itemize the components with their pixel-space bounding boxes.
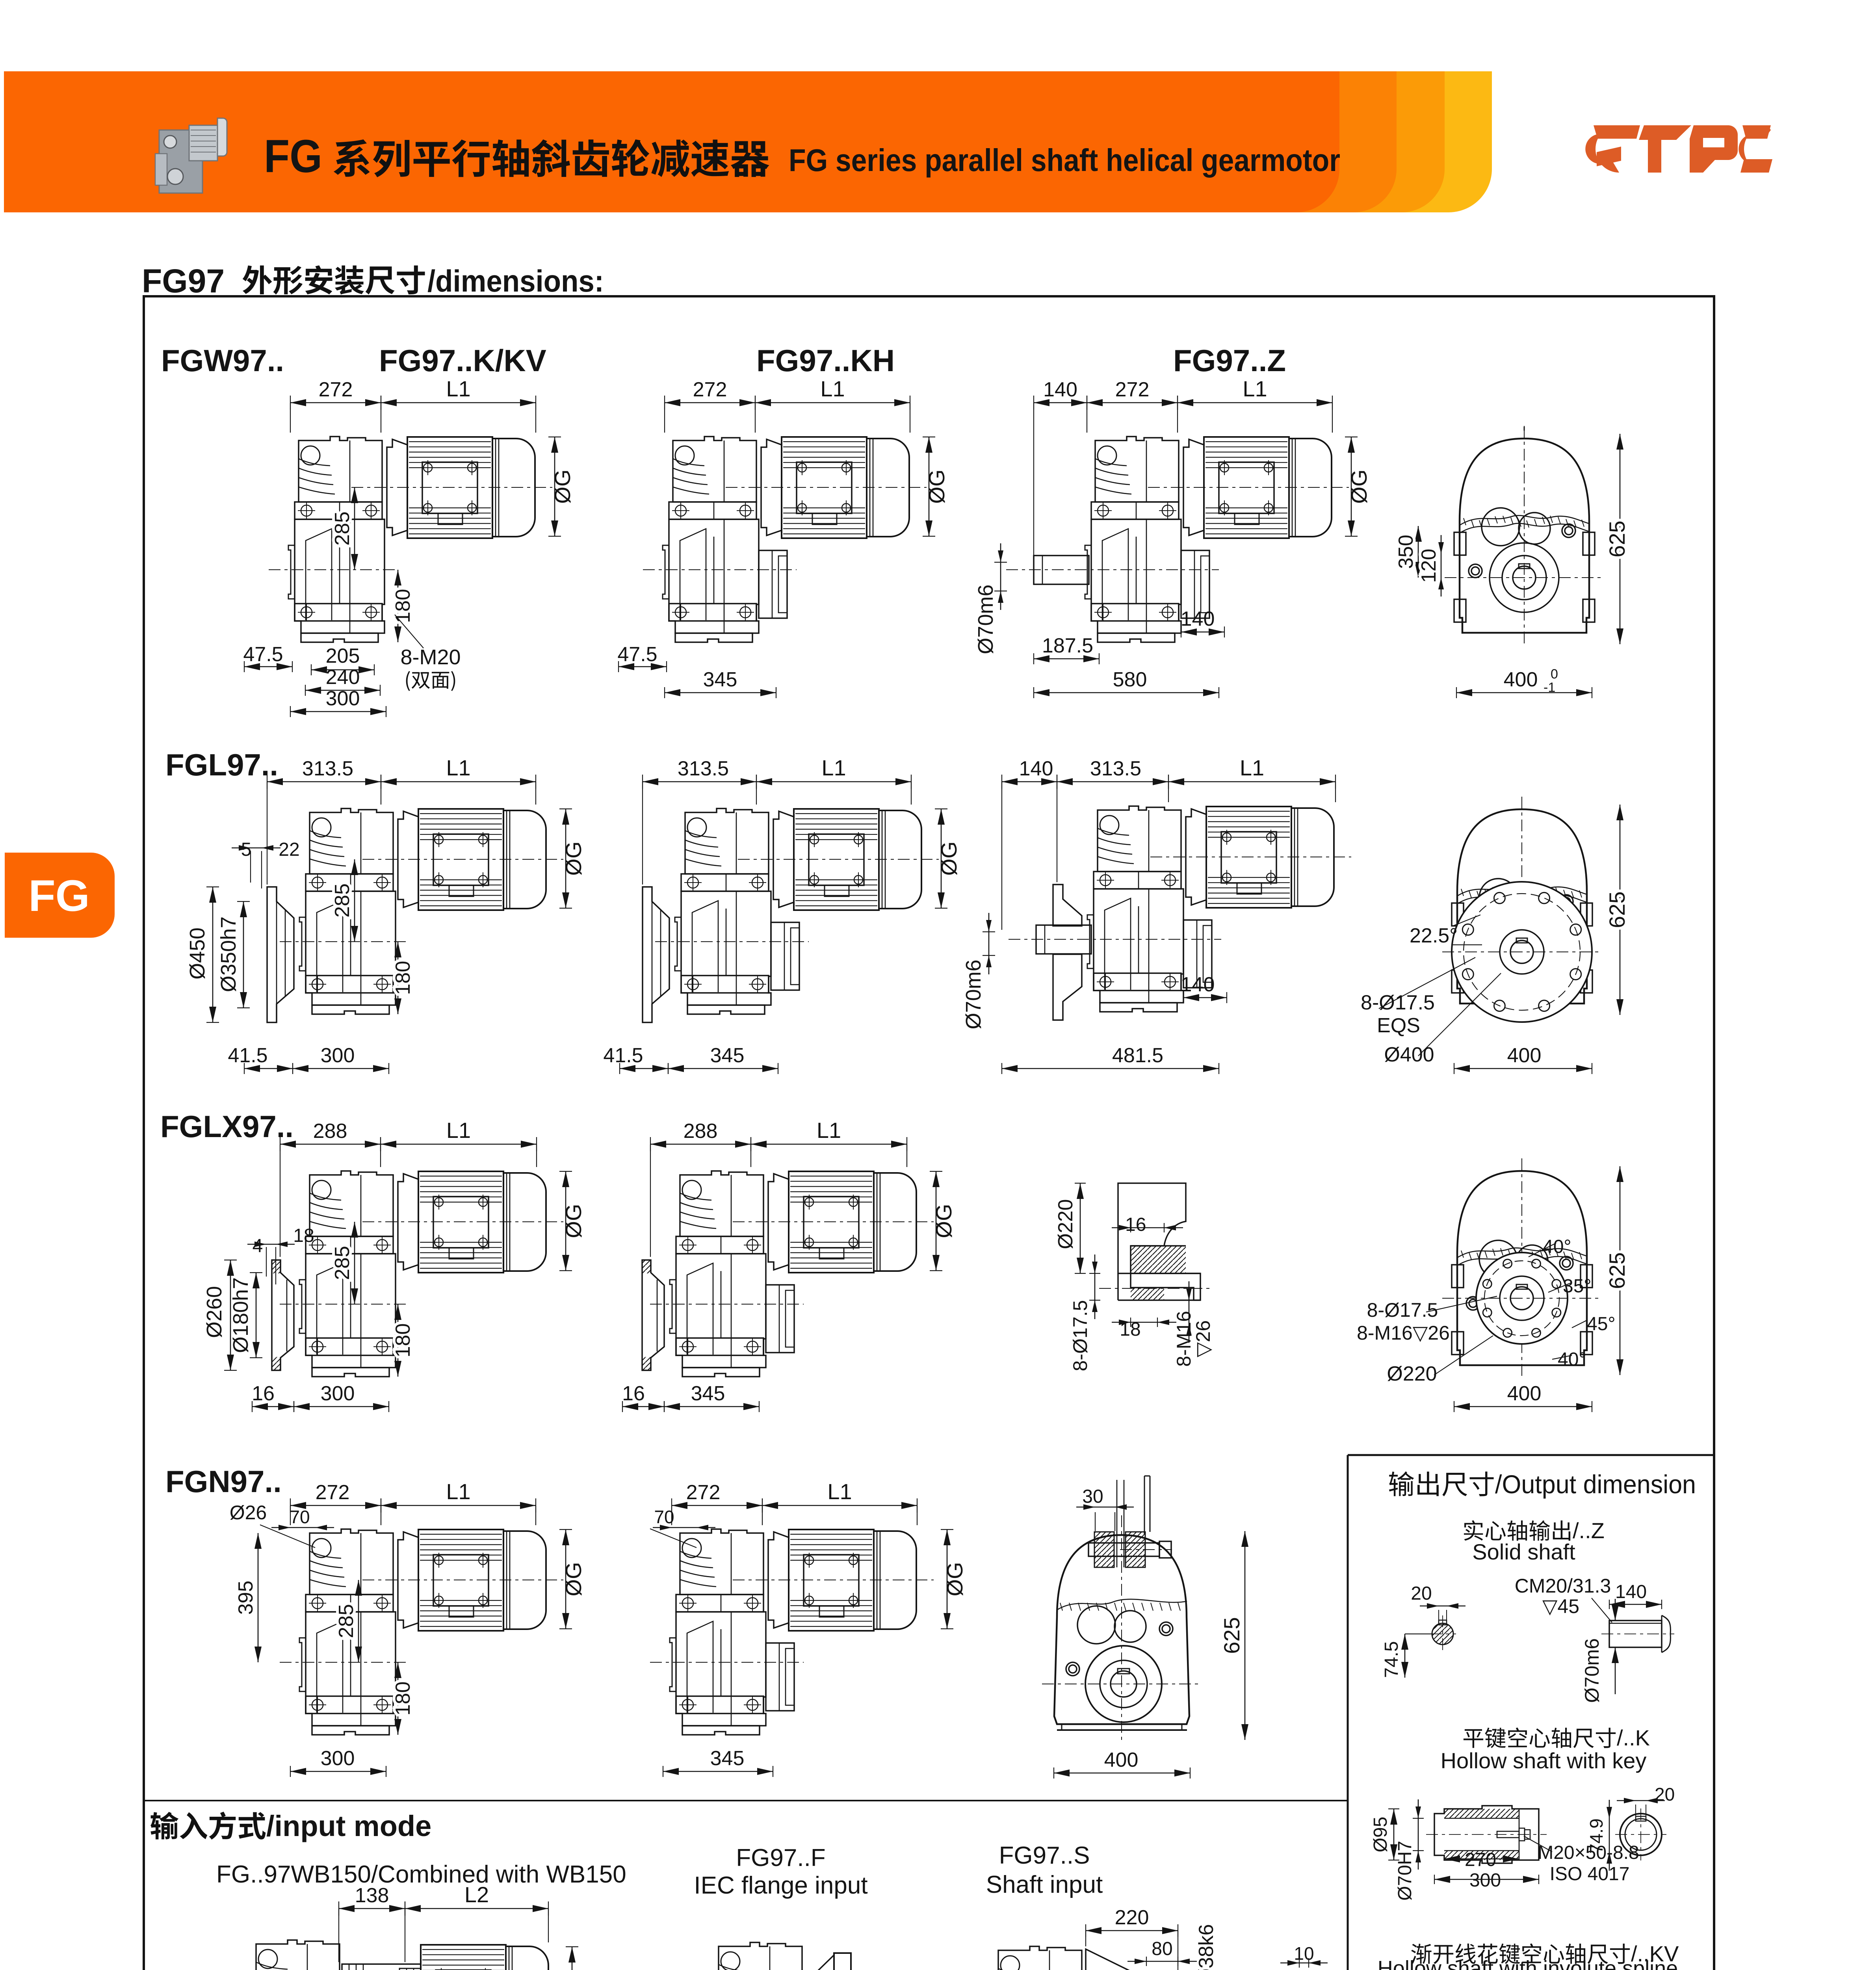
svg-text:16: 16 (252, 1382, 275, 1405)
svg-text:ØG: ØG (942, 1562, 967, 1596)
svg-text:140: 140 (1019, 757, 1053, 780)
svg-text:272: 272 (693, 378, 727, 401)
svg-text:140: 140 (1181, 973, 1215, 996)
svg-text:345: 345 (703, 668, 737, 691)
svg-text:FG: FG (28, 871, 90, 920)
svg-text:345: 345 (710, 1044, 745, 1067)
svg-text:400: 400 (1507, 1382, 1542, 1405)
svg-text:Ø400: Ø400 (1384, 1043, 1434, 1066)
svg-text:285: 285 (331, 883, 354, 918)
svg-text:L1: L1 (820, 376, 845, 401)
svg-text:345: 345 (691, 1382, 725, 1405)
svg-text:187.5: 187.5 (1042, 634, 1093, 657)
svg-text:313.5: 313.5 (1090, 757, 1141, 780)
svg-text:313.5: 313.5 (302, 757, 353, 780)
svg-text:41.5: 41.5 (228, 1044, 267, 1067)
svg-text:580: 580 (1113, 668, 1147, 691)
svg-text:395: 395 (234, 1581, 257, 1615)
svg-text:300: 300 (321, 1747, 355, 1770)
svg-text:272: 272 (319, 378, 353, 401)
svg-text:20: 20 (1655, 1784, 1675, 1805)
svg-text:/input mode: /input mode (266, 1810, 431, 1842)
svg-text:Ø220: Ø220 (1054, 1199, 1077, 1249)
svg-text:ØG: ØG (924, 469, 949, 504)
svg-text:/dimensions:: /dimensions: (427, 264, 604, 298)
svg-text:22.5°: 22.5° (1410, 924, 1458, 947)
svg-text:16: 16 (1125, 1214, 1146, 1235)
svg-text:FG..97WB150/Combined with WB15: FG..97WB150/Combined with WB150 (216, 1861, 626, 1888)
svg-text:481.5: 481.5 (1112, 1044, 1163, 1067)
svg-text:/..K: /..K (1617, 1725, 1650, 1750)
svg-text:/Output dimension: /Output dimension (1495, 1470, 1696, 1499)
svg-text:47.5: 47.5 (243, 643, 283, 666)
svg-text:16: 16 (622, 1382, 645, 1405)
svg-text:625: 625 (1219, 1617, 1244, 1654)
svg-text:ØG: ØG (931, 1204, 956, 1238)
svg-text:FG97..F: FG97..F (736, 1844, 825, 1871)
svg-text:Ø260: Ø260 (202, 1286, 226, 1338)
svg-text:4: 4 (253, 1236, 263, 1256)
svg-text:140: 140 (1181, 608, 1215, 630)
svg-text:8-M16▽26: 8-M16▽26 (1357, 1322, 1450, 1344)
svg-text:ØG: ØG (936, 841, 961, 875)
svg-text:IEC flange input: IEC flange input (694, 1872, 867, 1899)
svg-text:285: 285 (331, 511, 354, 546)
svg-text:EQS: EQS (1377, 1014, 1420, 1037)
svg-text:Ø220: Ø220 (1387, 1362, 1437, 1385)
svg-text:180: 180 (392, 1682, 414, 1716)
svg-text:45°: 45° (1587, 1314, 1616, 1334)
svg-text:70: 70 (654, 1507, 674, 1527)
svg-text:625: 625 (1605, 1252, 1629, 1289)
svg-text:625: 625 (1605, 891, 1629, 928)
svg-text:FG97..S: FG97..S (999, 1842, 1090, 1869)
svg-text:140: 140 (1615, 1582, 1647, 1602)
svg-text:40°: 40° (1558, 1349, 1586, 1370)
svg-text:▽26: ▽26 (1192, 1320, 1214, 1357)
svg-text:285: 285 (331, 1246, 354, 1280)
svg-text:300: 300 (321, 1044, 355, 1067)
svg-text:L1: L1 (1243, 376, 1267, 401)
svg-text:-1: -1 (1544, 680, 1555, 695)
svg-text:313.5: 313.5 (678, 757, 729, 780)
svg-text:74.9: 74.9 (1586, 1818, 1607, 1854)
svg-text:240: 240 (326, 666, 360, 689)
svg-text:300: 300 (326, 687, 360, 710)
svg-text:FG97: FG97 (142, 262, 225, 299)
svg-text:FG series parallel shaft helic: FG series parallel shaft helical gearmot… (789, 143, 1340, 178)
svg-text:10: 10 (1294, 1943, 1314, 1964)
svg-text:30: 30 (1082, 1486, 1103, 1507)
svg-text:18: 18 (293, 1225, 314, 1246)
svg-text:288: 288 (313, 1120, 347, 1143)
svg-text:180: 180 (392, 961, 414, 995)
svg-text:Hollow shaft with involute spl: Hollow shaft with involute spline (1378, 1957, 1678, 1970)
svg-text:L1: L1 (821, 755, 846, 780)
svg-text:345: 345 (710, 1747, 745, 1770)
svg-text:8-Ø17.5: 8-Ø17.5 (1069, 1300, 1091, 1372)
svg-text:Ø95: Ø95 (1370, 1817, 1391, 1853)
svg-text:Solid shaft: Solid shaft (1472, 1539, 1575, 1564)
svg-text:400: 400 (1504, 668, 1538, 691)
svg-text:FGLX97..: FGLX97.. (160, 1109, 293, 1144)
svg-text:70: 70 (290, 1507, 310, 1527)
svg-text:180: 180 (392, 1323, 414, 1358)
svg-text:FGW97..: FGW97.. (161, 343, 284, 378)
svg-text:CM20/31.3: CM20/31.3 (1515, 1575, 1611, 1597)
svg-text:L1: L1 (446, 1479, 470, 1504)
svg-text:140: 140 (1043, 378, 1077, 401)
svg-text:272: 272 (686, 1481, 721, 1504)
svg-text:80: 80 (1152, 1938, 1172, 1959)
svg-text:FG97..Z: FG97..Z (1173, 343, 1286, 378)
svg-text:205: 205 (326, 645, 360, 667)
svg-text:L1: L1 (446, 755, 470, 780)
svg-text:FG97..KH: FG97..KH (756, 343, 895, 378)
svg-text:625: 625 (1605, 520, 1629, 557)
svg-text:300: 300 (321, 1382, 355, 1405)
svg-text:47.5: 47.5 (617, 643, 657, 666)
svg-text:20: 20 (1411, 1583, 1432, 1604)
svg-text:22: 22 (279, 839, 299, 860)
svg-text:41.5: 41.5 (603, 1044, 643, 1067)
svg-text:FG97..K/KV: FG97..K/KV (379, 343, 546, 378)
svg-text:Ø180h7: Ø180h7 (229, 1277, 253, 1353)
svg-text:ØG: ØG (1347, 469, 1371, 504)
svg-text:/..Z: /..Z (1573, 1518, 1605, 1543)
svg-text:Shaft input: Shaft input (986, 1871, 1103, 1898)
svg-text:L2: L2 (464, 1882, 489, 1907)
svg-text:0: 0 (1551, 667, 1558, 682)
svg-text:FGL97..: FGL97.. (165, 747, 278, 782)
svg-text:Ø350h7: Ø350h7 (217, 916, 240, 992)
svg-text:285: 285 (335, 1604, 358, 1638)
svg-text:Ø70H7: Ø70H7 (1395, 1841, 1415, 1901)
svg-text:Ø26: Ø26 (230, 1502, 267, 1524)
svg-text:138: 138 (355, 1884, 389, 1907)
svg-text:120: 120 (1417, 549, 1440, 583)
svg-text:Hollow shaft with key: Hollow shaft with key (1441, 1748, 1647, 1773)
svg-text:▽45: ▽45 (1542, 1595, 1579, 1617)
svg-text:400: 400 (1104, 1749, 1139, 1771)
svg-text:8-M16: 8-M16 (1173, 1311, 1195, 1367)
svg-text:L1: L1 (446, 1118, 471, 1143)
svg-text:8-Ø17.5: 8-Ø17.5 (1361, 991, 1435, 1014)
svg-text:FG: FG (264, 130, 322, 182)
svg-text:300: 300 (1469, 1870, 1501, 1891)
svg-text:L1: L1 (827, 1479, 852, 1504)
svg-text:180: 180 (392, 589, 414, 623)
svg-text:FGN97..: FGN97.. (165, 1464, 282, 1499)
svg-text:ØG: ØG (561, 1562, 586, 1596)
svg-text:ØG: ØG (561, 841, 586, 875)
svg-text:Ø70m6: Ø70m6 (962, 959, 985, 1029)
svg-text:Ø70m6: Ø70m6 (1581, 1638, 1603, 1703)
svg-text:8-M20: 8-M20 (400, 645, 461, 669)
svg-text:Ø38k6: Ø38k6 (1195, 1924, 1218, 1970)
svg-text:8-Ø17.5: 8-Ø17.5 (1367, 1299, 1438, 1321)
svg-text:18: 18 (1120, 1319, 1140, 1340)
svg-text:270: 270 (1465, 1849, 1496, 1870)
svg-text:L1: L1 (1240, 755, 1264, 780)
svg-text:350: 350 (1395, 535, 1417, 569)
svg-text:40°: 40° (1543, 1236, 1571, 1257)
svg-text:L1: L1 (446, 376, 470, 401)
svg-text:272: 272 (316, 1481, 350, 1504)
svg-text:400: 400 (1507, 1044, 1542, 1067)
svg-text:ØG: ØG (561, 1204, 586, 1238)
svg-text:Ø70m6: Ø70m6 (974, 584, 997, 654)
svg-text:ISO 4017: ISO 4017 (1550, 1864, 1630, 1885)
svg-text:Ø450: Ø450 (186, 927, 209, 979)
svg-text:220: 220 (1115, 1906, 1149, 1929)
svg-text:L1: L1 (817, 1118, 841, 1143)
svg-text:288: 288 (684, 1120, 718, 1143)
svg-text:5: 5 (241, 839, 252, 860)
svg-text:272: 272 (1115, 378, 1150, 401)
svg-text:35°: 35° (1563, 1276, 1592, 1297)
svg-text:74.5: 74.5 (1381, 1641, 1402, 1678)
svg-text:ØG: ØG (550, 469, 575, 504)
